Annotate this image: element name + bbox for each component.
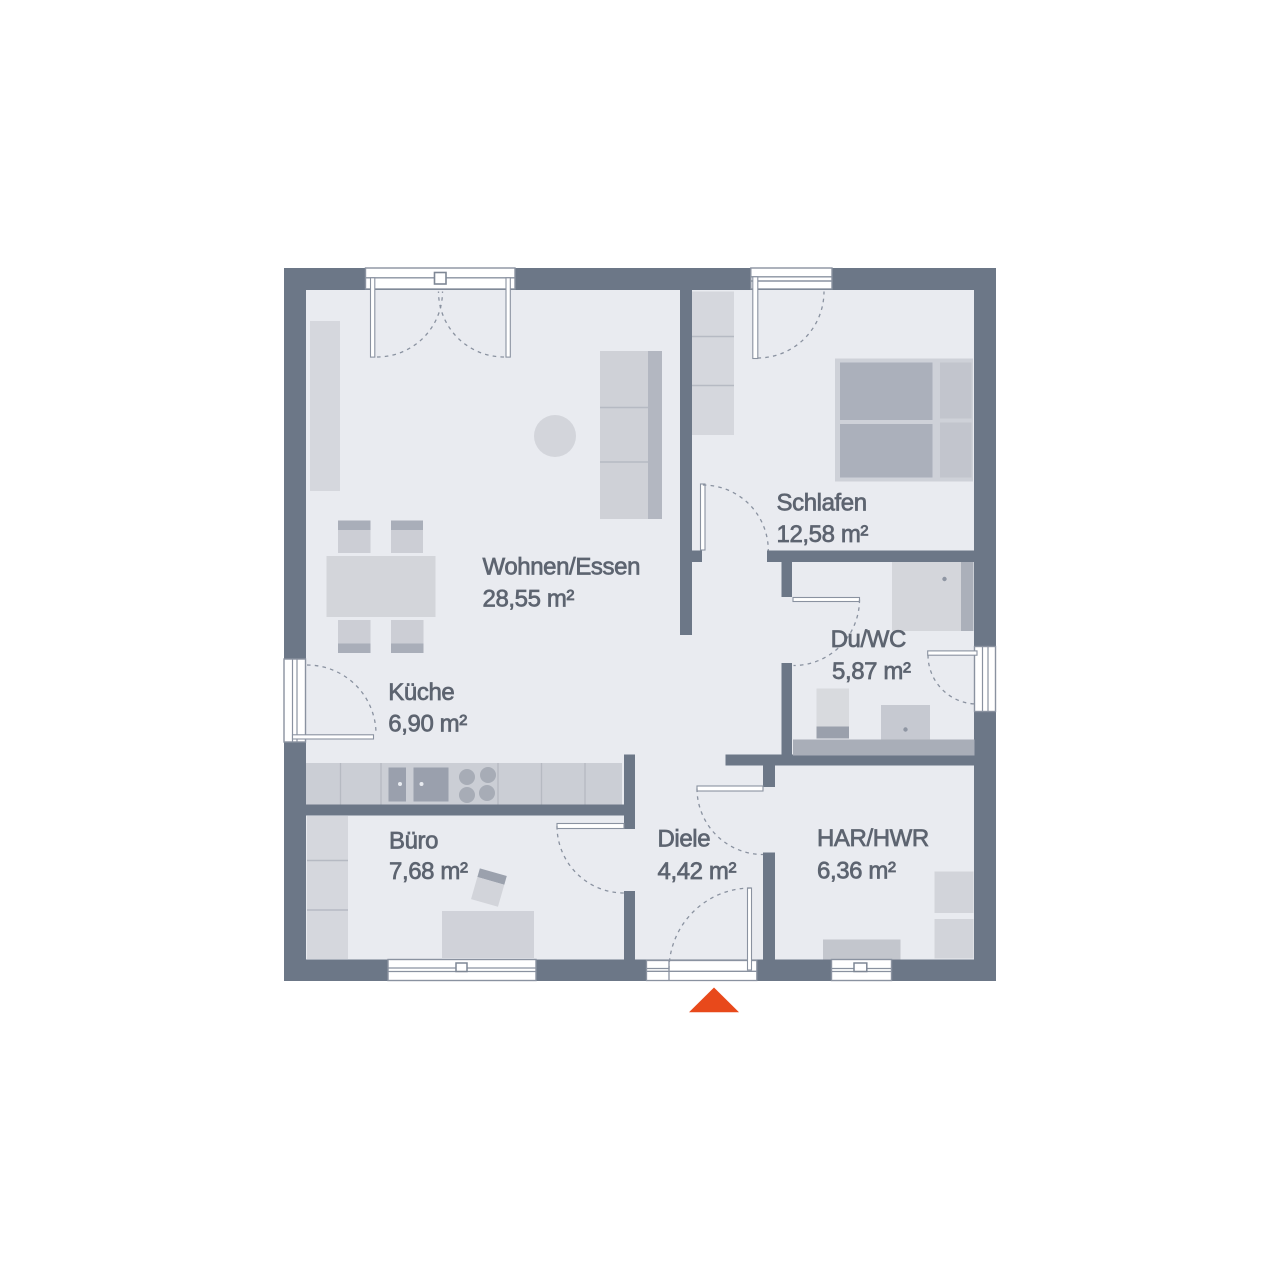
svg-text:4,42 m²: 4,42 m²	[658, 858, 737, 885]
svg-text:Diele: Diele	[658, 826, 711, 853]
svg-text:6,36 m²: 6,36 m²	[817, 858, 896, 885]
svg-text:Büro: Büro	[389, 827, 438, 854]
svg-text:Küche: Küche	[388, 679, 454, 706]
svg-text:12,58 m²: 12,58 m²	[777, 521, 869, 548]
svg-text:Du/WC: Du/WC	[831, 626, 906, 653]
svg-text:6,90 m²: 6,90 m²	[388, 711, 467, 738]
svg-text:7,68 m²: 7,68 m²	[389, 858, 468, 885]
svg-text:28,55 m²: 28,55 m²	[483, 586, 575, 613]
svg-text:Wohnen/Essen: Wohnen/Essen	[483, 554, 641, 581]
svg-text:Schlafen: Schlafen	[777, 490, 867, 517]
svg-text:HAR/HWR: HAR/HWR	[817, 825, 929, 852]
svg-text:5,87 m²: 5,87 m²	[832, 658, 911, 685]
